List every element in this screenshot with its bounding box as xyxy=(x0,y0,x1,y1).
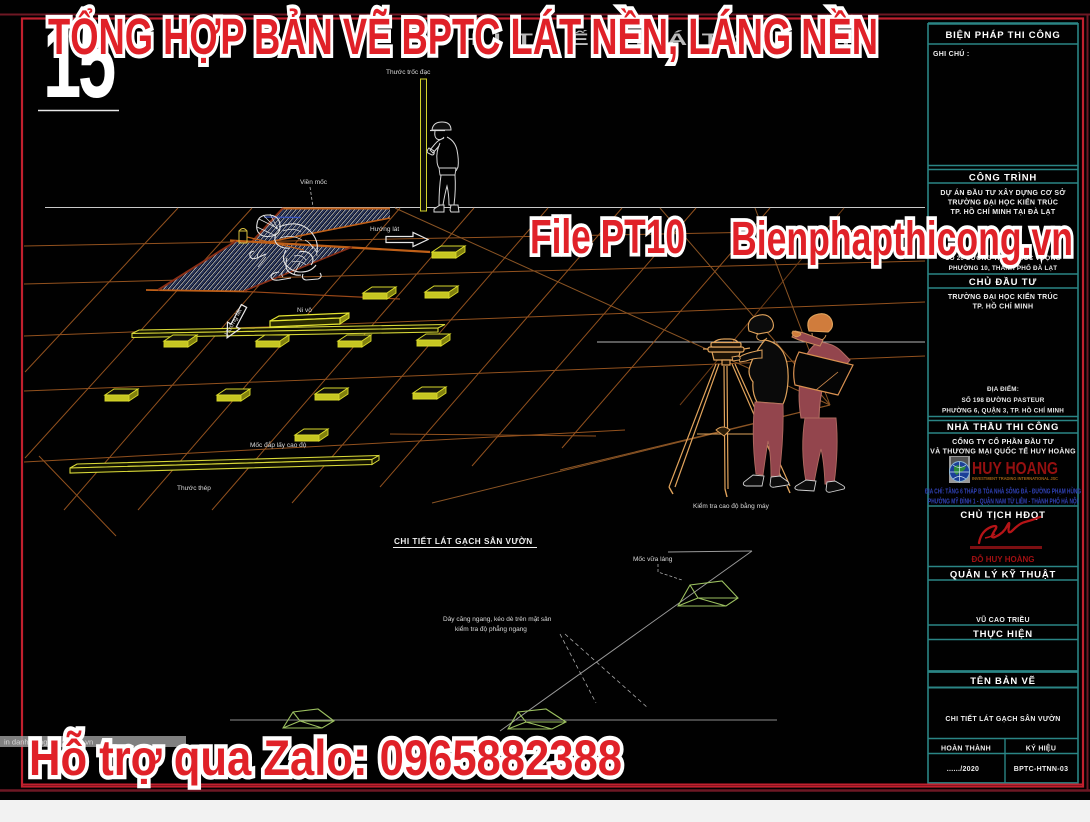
svg-text:CHI TIẾT LÁT GẠCH SÂN VƯỜN: CHI TIẾT LÁT GẠCH SÂN VƯỜN xyxy=(394,535,533,546)
svg-text:Mốc đắp lấy cao độ: Mốc đắp lấy cao độ xyxy=(250,440,307,449)
svg-text:Bienphapthicong.vn: Bienphapthicong.vn xyxy=(731,213,1073,266)
svg-text:THỰC HIỆN: THỰC HIỆN xyxy=(973,628,1033,640)
svg-text:Hỗ trợ qua Zalo: 0965882388: Hỗ trợ qua Zalo: 0965882388 xyxy=(29,730,622,786)
svg-text:ĐỊA ĐIỂM:: ĐỊA ĐIỂM: xyxy=(987,384,1019,393)
svg-text:QUẢN LÝ KỸ THUẬT: QUẢN LÝ KỸ THUẬT xyxy=(950,569,1056,581)
svg-text:PHƯỜNG MỸ ĐÌNH 1 - QUẬN NAM TỪ: PHƯỜNG MỸ ĐÌNH 1 - QUẬN NAM TỪ LIÊM - TH… xyxy=(928,496,1078,506)
svg-text:HOÀN THÀNH: HOÀN THÀNH xyxy=(941,744,991,753)
svg-text:Hướng lát: Hướng lát xyxy=(370,226,399,233)
svg-text:BIỆN PHÁP THI CÔNG: BIỆN PHÁP THI CÔNG xyxy=(945,29,1060,41)
svg-text:Mốc vữa láng: Mốc vữa láng xyxy=(633,554,673,563)
svg-text:NHÀ THẦU THI CÔNG: NHÀ THẦU THI CÔNG xyxy=(947,421,1059,433)
svg-text:Viền mốc: Viền mốc xyxy=(300,177,328,186)
svg-text:Thước thép: Thước thép xyxy=(177,485,211,492)
svg-text:ĐỊA CHỈ: TẦNG 6 THÁP B TÒA NHÀ: ĐỊA CHỈ: TẦNG 6 THÁP B TÒA NHÀ SÔNG ĐÀ -… xyxy=(925,486,1081,496)
svg-text:ĐỖ HUY HOÀNG: ĐỖ HUY HOÀNG xyxy=(972,555,1035,564)
svg-text:File PT10: File PT10 xyxy=(530,211,685,264)
svg-text:KÝ HIỆU: KÝ HIỆU xyxy=(1026,744,1057,753)
svg-text:BPTC-HTNN-03: BPTC-HTNN-03 xyxy=(1014,766,1069,773)
svg-text:INVESTMENT TRADING INTERNATION: INVESTMENT TRADING INTERNATIONAL JSC xyxy=(972,476,1059,481)
svg-text:Ni vô: Ni vô xyxy=(297,307,312,314)
svg-text:TỔNG HỢP BẢN VẼ BPTC LÁT NỀN,: TỔNG HỢP BẢN VẼ BPTC LÁT NỀN, LÁNG NỀN xyxy=(48,7,878,65)
svg-text:Kiểm tra cao độ bằng máy: Kiểm tra cao độ bằng máy xyxy=(693,501,770,510)
svg-text:Dây căng ngang, kéo dè trên m: Dây căng ngang, kéo dè trên mặt sân xyxy=(443,616,552,623)
svg-text:CHỦ ĐẦU TƯ: CHỦ ĐẦU TƯ xyxy=(969,276,1037,288)
svg-text:TÊN BẢN VẼ: TÊN BẢN VẼ xyxy=(970,675,1036,687)
svg-text:HUY HOANG: HUY HOANG xyxy=(972,458,1058,478)
svg-text:Thước trốc đạc: Thước trốc đạc xyxy=(386,67,431,76)
svg-text:CÔNG TRÌNH: CÔNG TRÌNH xyxy=(969,172,1037,184)
svg-text:kiểm tra độ phẳng ngang: kiểm tra độ phẳng ngang xyxy=(455,624,527,633)
svg-text:....../2020: ....../2020 xyxy=(947,766,980,773)
svg-text:GHI CHÚ :: GHI CHÚ : xyxy=(933,49,970,58)
